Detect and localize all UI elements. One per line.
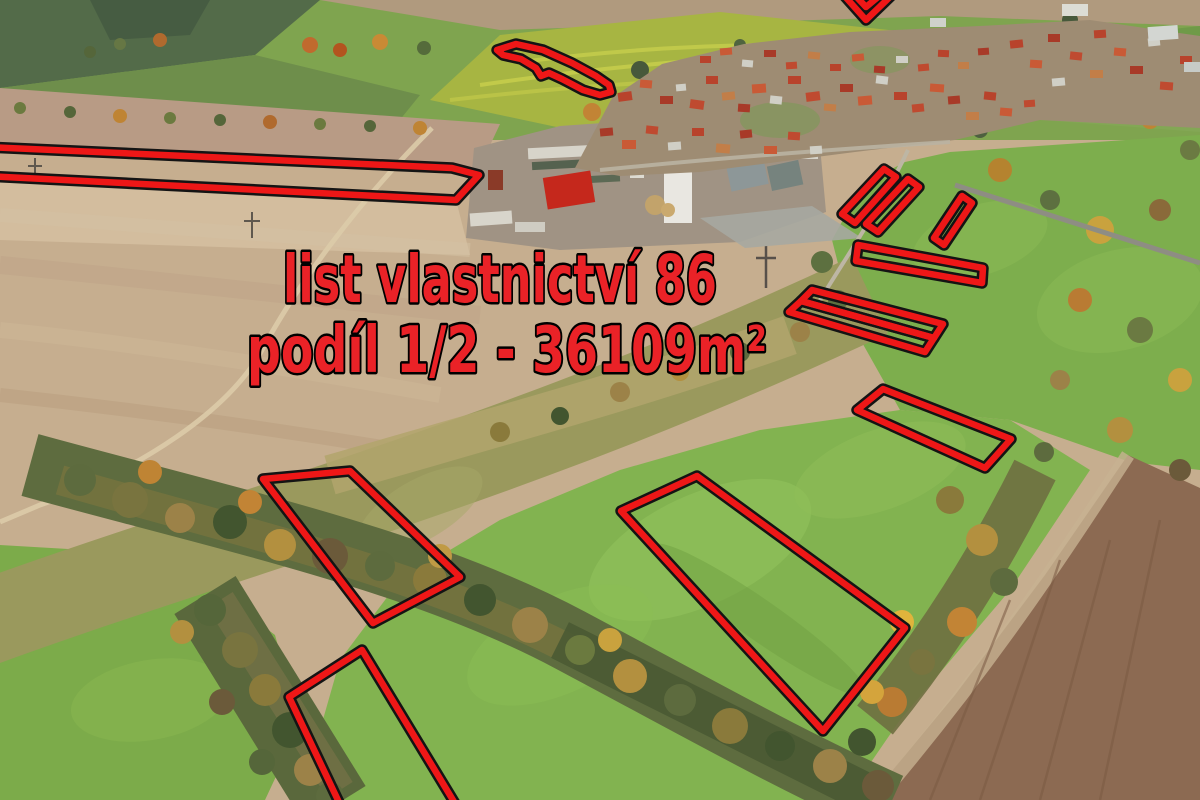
tree-blob (664, 684, 696, 716)
house-roof (894, 92, 907, 100)
house-roof (840, 84, 853, 92)
tree-blob (333, 43, 347, 57)
house-roof (742, 60, 754, 68)
house-roof (700, 56, 711, 63)
tree-blob (936, 486, 964, 514)
house-roof (786, 62, 797, 70)
house-roof (1094, 30, 1107, 39)
tree-blob (1107, 417, 1133, 443)
tree-blob (583, 103, 601, 121)
house-roof (646, 125, 659, 134)
tree-blob (64, 106, 76, 118)
tree-blob (194, 594, 226, 626)
house-roof (1090, 70, 1103, 78)
tree-blob (112, 482, 148, 518)
tree-blob (138, 460, 162, 484)
tree-blob (164, 112, 176, 124)
house-roof (738, 104, 751, 113)
house-roof (770, 95, 783, 104)
tree-blob (909, 649, 935, 675)
house-roof (978, 48, 989, 56)
tree-blob (1127, 317, 1153, 343)
tree-blob (113, 109, 127, 123)
house-roof (1030, 60, 1043, 69)
house-roof (930, 84, 945, 93)
tree-blob (1040, 190, 1060, 210)
house-roof (852, 53, 865, 61)
house-roof (830, 64, 841, 71)
house-roof (958, 62, 969, 69)
tree-blob (848, 728, 876, 756)
tree-blob (966, 524, 998, 556)
tree-blob (765, 731, 795, 761)
tree-blob (990, 568, 1018, 596)
house-roof (1024, 100, 1035, 108)
tree-blob (490, 422, 510, 442)
annotation-line-2: podíl 1/2 - 36109m² (247, 314, 767, 388)
tree-blob (1149, 199, 1171, 221)
aerial-photo: list vlastnictví 86 podíl 1/2 - 36109m² (0, 0, 1200, 800)
tree-blob (153, 33, 167, 47)
house-roof (788, 132, 801, 141)
tree-blob (249, 749, 275, 775)
tree-blob (222, 632, 258, 668)
tree-blob (512, 607, 548, 643)
tree-blob (209, 689, 235, 715)
tree-blob (464, 584, 496, 616)
house-roof (1062, 4, 1088, 16)
tree-blob (1168, 368, 1192, 392)
house-roof (938, 50, 949, 58)
house-roof (1148, 25, 1179, 41)
tree-blob (114, 38, 126, 50)
tree-blob (14, 102, 26, 114)
house-roof (1130, 66, 1143, 74)
tree-blob (565, 635, 595, 665)
tree-blob (811, 251, 833, 273)
annotation-line-1: list vlastnictví 86 (283, 241, 717, 318)
house-roof (720, 47, 733, 55)
tree-blob (1180, 140, 1200, 160)
tree-blob (712, 708, 748, 744)
farm-shed-red (488, 170, 503, 190)
house-roof (1052, 77, 1066, 86)
house-roof (764, 50, 776, 57)
tree-blob (263, 115, 277, 129)
tree-blob (1068, 288, 1092, 312)
house-roof (824, 103, 837, 111)
tree-blob (264, 529, 296, 561)
house-roof (1048, 34, 1060, 42)
house-roof (764, 146, 777, 154)
house-roof (706, 76, 718, 84)
house-roof (1010, 39, 1024, 48)
tree-blob (947, 607, 977, 637)
tree-blob (1034, 442, 1054, 462)
house-roof (668, 142, 682, 151)
house-roof (912, 103, 925, 112)
house-roof (692, 128, 704, 136)
house-roof (1000, 107, 1013, 116)
tree-blob (302, 37, 318, 53)
house-roof (740, 129, 753, 138)
house-roof (640, 79, 653, 88)
house-roof (752, 84, 767, 94)
house-roof (858, 95, 873, 105)
tree-blob (214, 114, 226, 126)
house-roof (1070, 51, 1083, 60)
house-roof (788, 76, 801, 84)
house-roof (808, 51, 821, 59)
house-roof (896, 56, 908, 63)
tree-blob (84, 46, 96, 58)
house-roof (1160, 82, 1174, 91)
house-roof (600, 127, 614, 136)
house-roof (948, 95, 961, 104)
village-green (740, 102, 820, 138)
tree-blob (613, 659, 647, 693)
house-roof (1114, 47, 1127, 56)
house-roof (966, 112, 979, 120)
annotation-text: list vlastnictví 86 podíl 1/2 - 36109m² (247, 241, 767, 388)
farm-white-panels (515, 222, 545, 232)
house-roof (876, 75, 889, 84)
house-roof (1184, 62, 1200, 72)
house-roof (810, 146, 823, 155)
tree-blob (598, 628, 622, 652)
house-roof (660, 96, 673, 104)
house-roof (984, 91, 997, 100)
tree-blob (790, 322, 810, 342)
tree-blob (1050, 370, 1070, 390)
house-roof (918, 64, 930, 72)
tree-blob (413, 121, 427, 135)
sand-pile (661, 203, 675, 217)
tree-blob (364, 120, 376, 132)
tree-blob (365, 551, 395, 581)
tree-blob (417, 41, 431, 55)
house-roof (930, 18, 946, 27)
tree-blob (551, 407, 569, 425)
tree-blob (1169, 459, 1191, 481)
tree-blob (314, 118, 326, 130)
house-roof (676, 84, 687, 92)
tree-blob (372, 34, 388, 50)
screenshot-root: list vlastnictví 86 podíl 1/2 - 36109m² (0, 0, 1200, 800)
tree-blob (813, 749, 847, 783)
tree-blob (64, 464, 96, 496)
tree-blob (170, 620, 194, 644)
house-roof (622, 140, 636, 149)
tree-blob (988, 158, 1012, 182)
tree-blob (249, 674, 281, 706)
house-roof (722, 91, 736, 100)
tree-blob (238, 490, 262, 514)
house-roof (806, 91, 821, 102)
house-roof (874, 66, 885, 74)
tree-blob (165, 503, 195, 533)
house-roof (716, 143, 731, 153)
